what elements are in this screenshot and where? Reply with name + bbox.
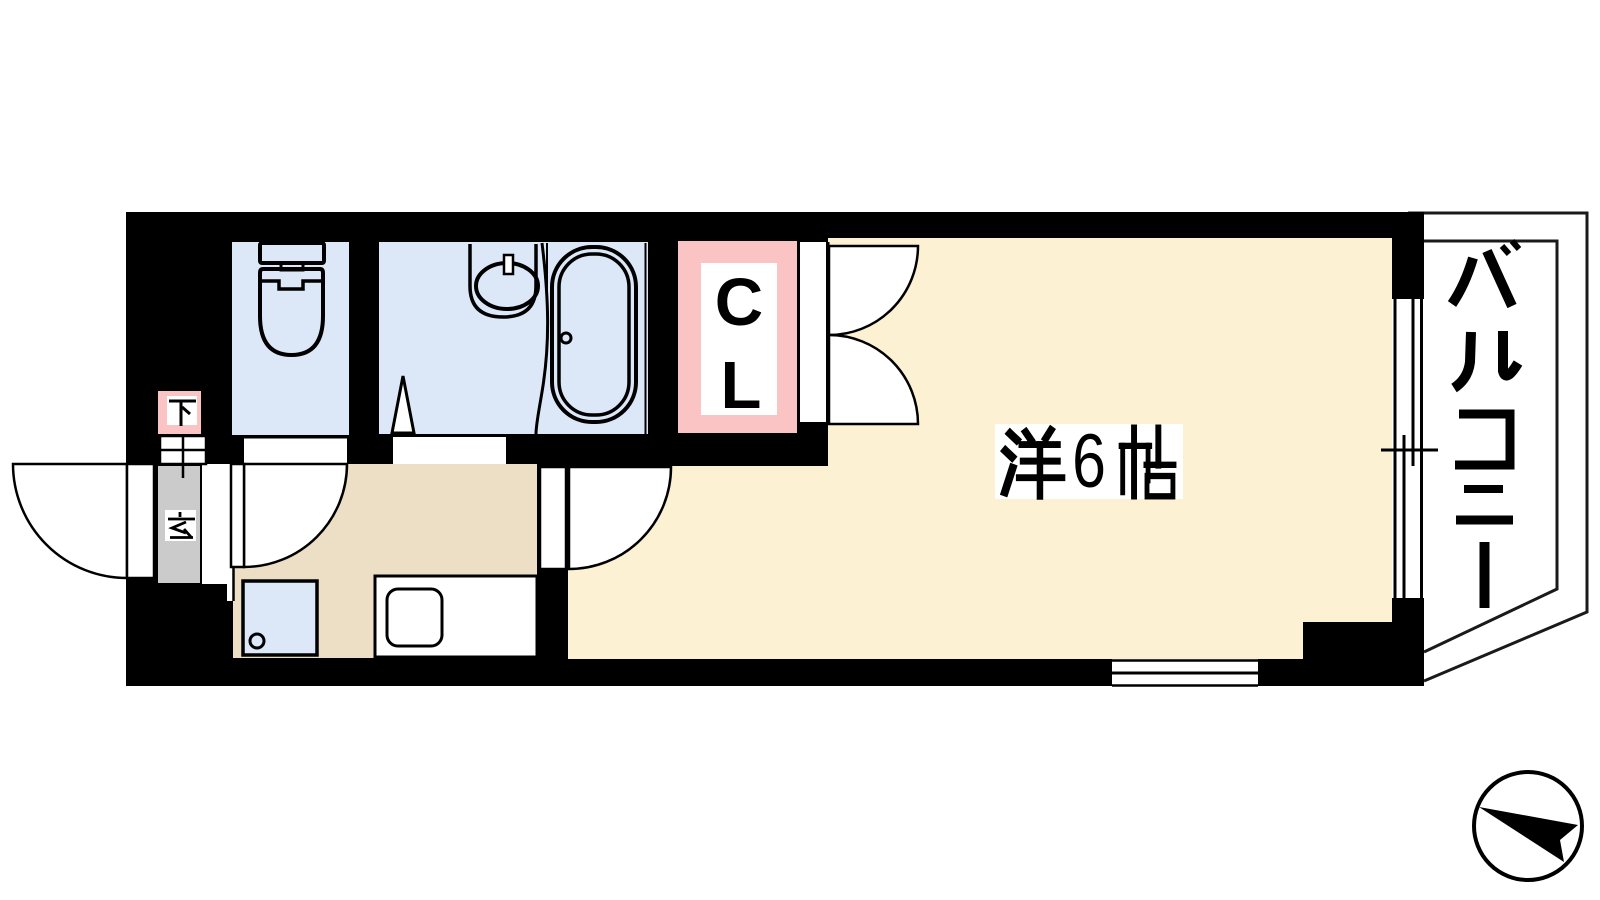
svg-text:6: 6 <box>1072 419 1106 504</box>
svg-text:L: L <box>721 348 762 423</box>
svg-text:C: C <box>715 265 763 340</box>
